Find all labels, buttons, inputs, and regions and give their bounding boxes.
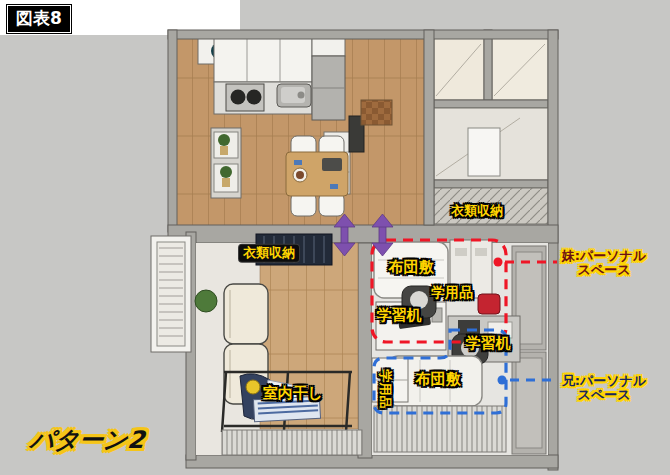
floor-plan-graphic [0,0,670,475]
label-futon-sister: 布団敷 [389,260,434,276]
label-supplies-sister: 学用品 [431,285,473,300]
callout-brother-line1: 兄:パーソナル [562,374,646,388]
label-desk-sister: 学習机 [377,308,422,324]
hall-door [468,128,500,176]
backpack [478,294,500,314]
label-futon-brother: 布団敷 [416,372,461,388]
label-indoor-drying: 室内干し [263,386,323,402]
callout-brother-line2: スペース [562,388,646,402]
callout-sister-line1: 妹:パーソナル [562,249,646,263]
callout-brother: 兄:パーソナル スペース [562,374,646,401]
pattern-label: パターン2 [28,424,146,456]
label-closet-hall: 衣類収納 [451,204,503,218]
label-closet-living: 衣類収納 [239,245,299,262]
label-desk-brother: 学習机 [466,336,511,352]
plant [195,290,217,312]
bay-window [151,236,191,352]
callout-sister-line2: スペース [562,263,646,277]
kitchen-dining-area [176,38,424,228]
washroom-area [434,30,548,224]
floor-plan-diagram: 図表8 衣類収納 衣類収納 布団敷 学用品 学習机 学習机 布団敷 学用品 室内… [0,0,670,475]
entry-tile [361,100,392,125]
figure-badge: 図表8 [6,4,72,34]
living-room [151,234,362,455]
label-supplies-brother: 学用品 [378,370,392,409]
callout-sister: 妹:パーソナル スペース [562,249,646,276]
